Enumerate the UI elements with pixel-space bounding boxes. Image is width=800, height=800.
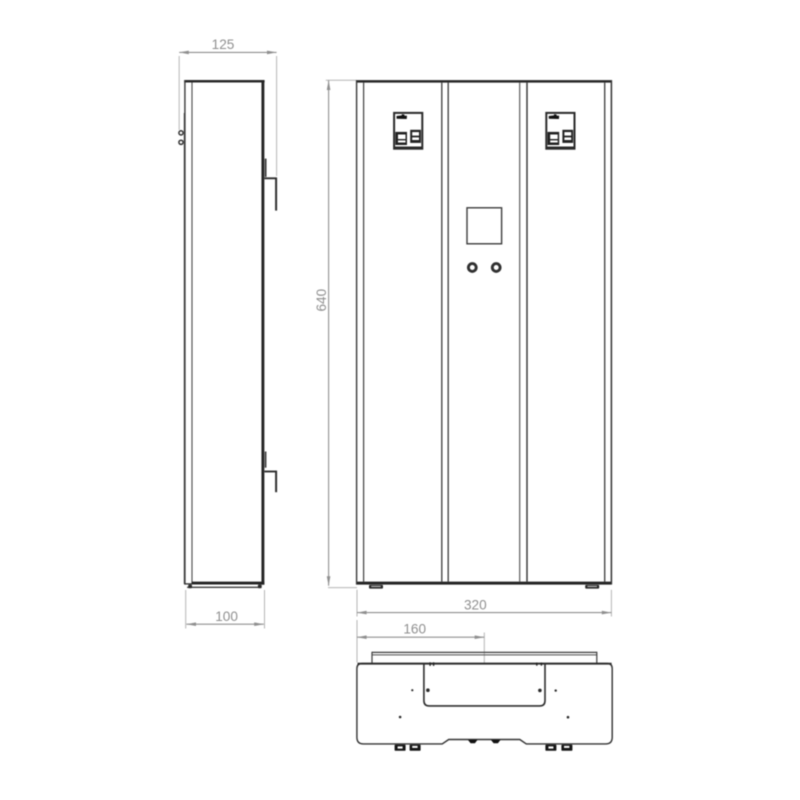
svg-text:125: 125 xyxy=(212,37,235,52)
svg-text:100: 100 xyxy=(215,609,238,624)
svg-text:320: 320 xyxy=(464,598,487,613)
svg-text:640: 640 xyxy=(314,288,329,311)
svg-text:160: 160 xyxy=(403,622,426,637)
